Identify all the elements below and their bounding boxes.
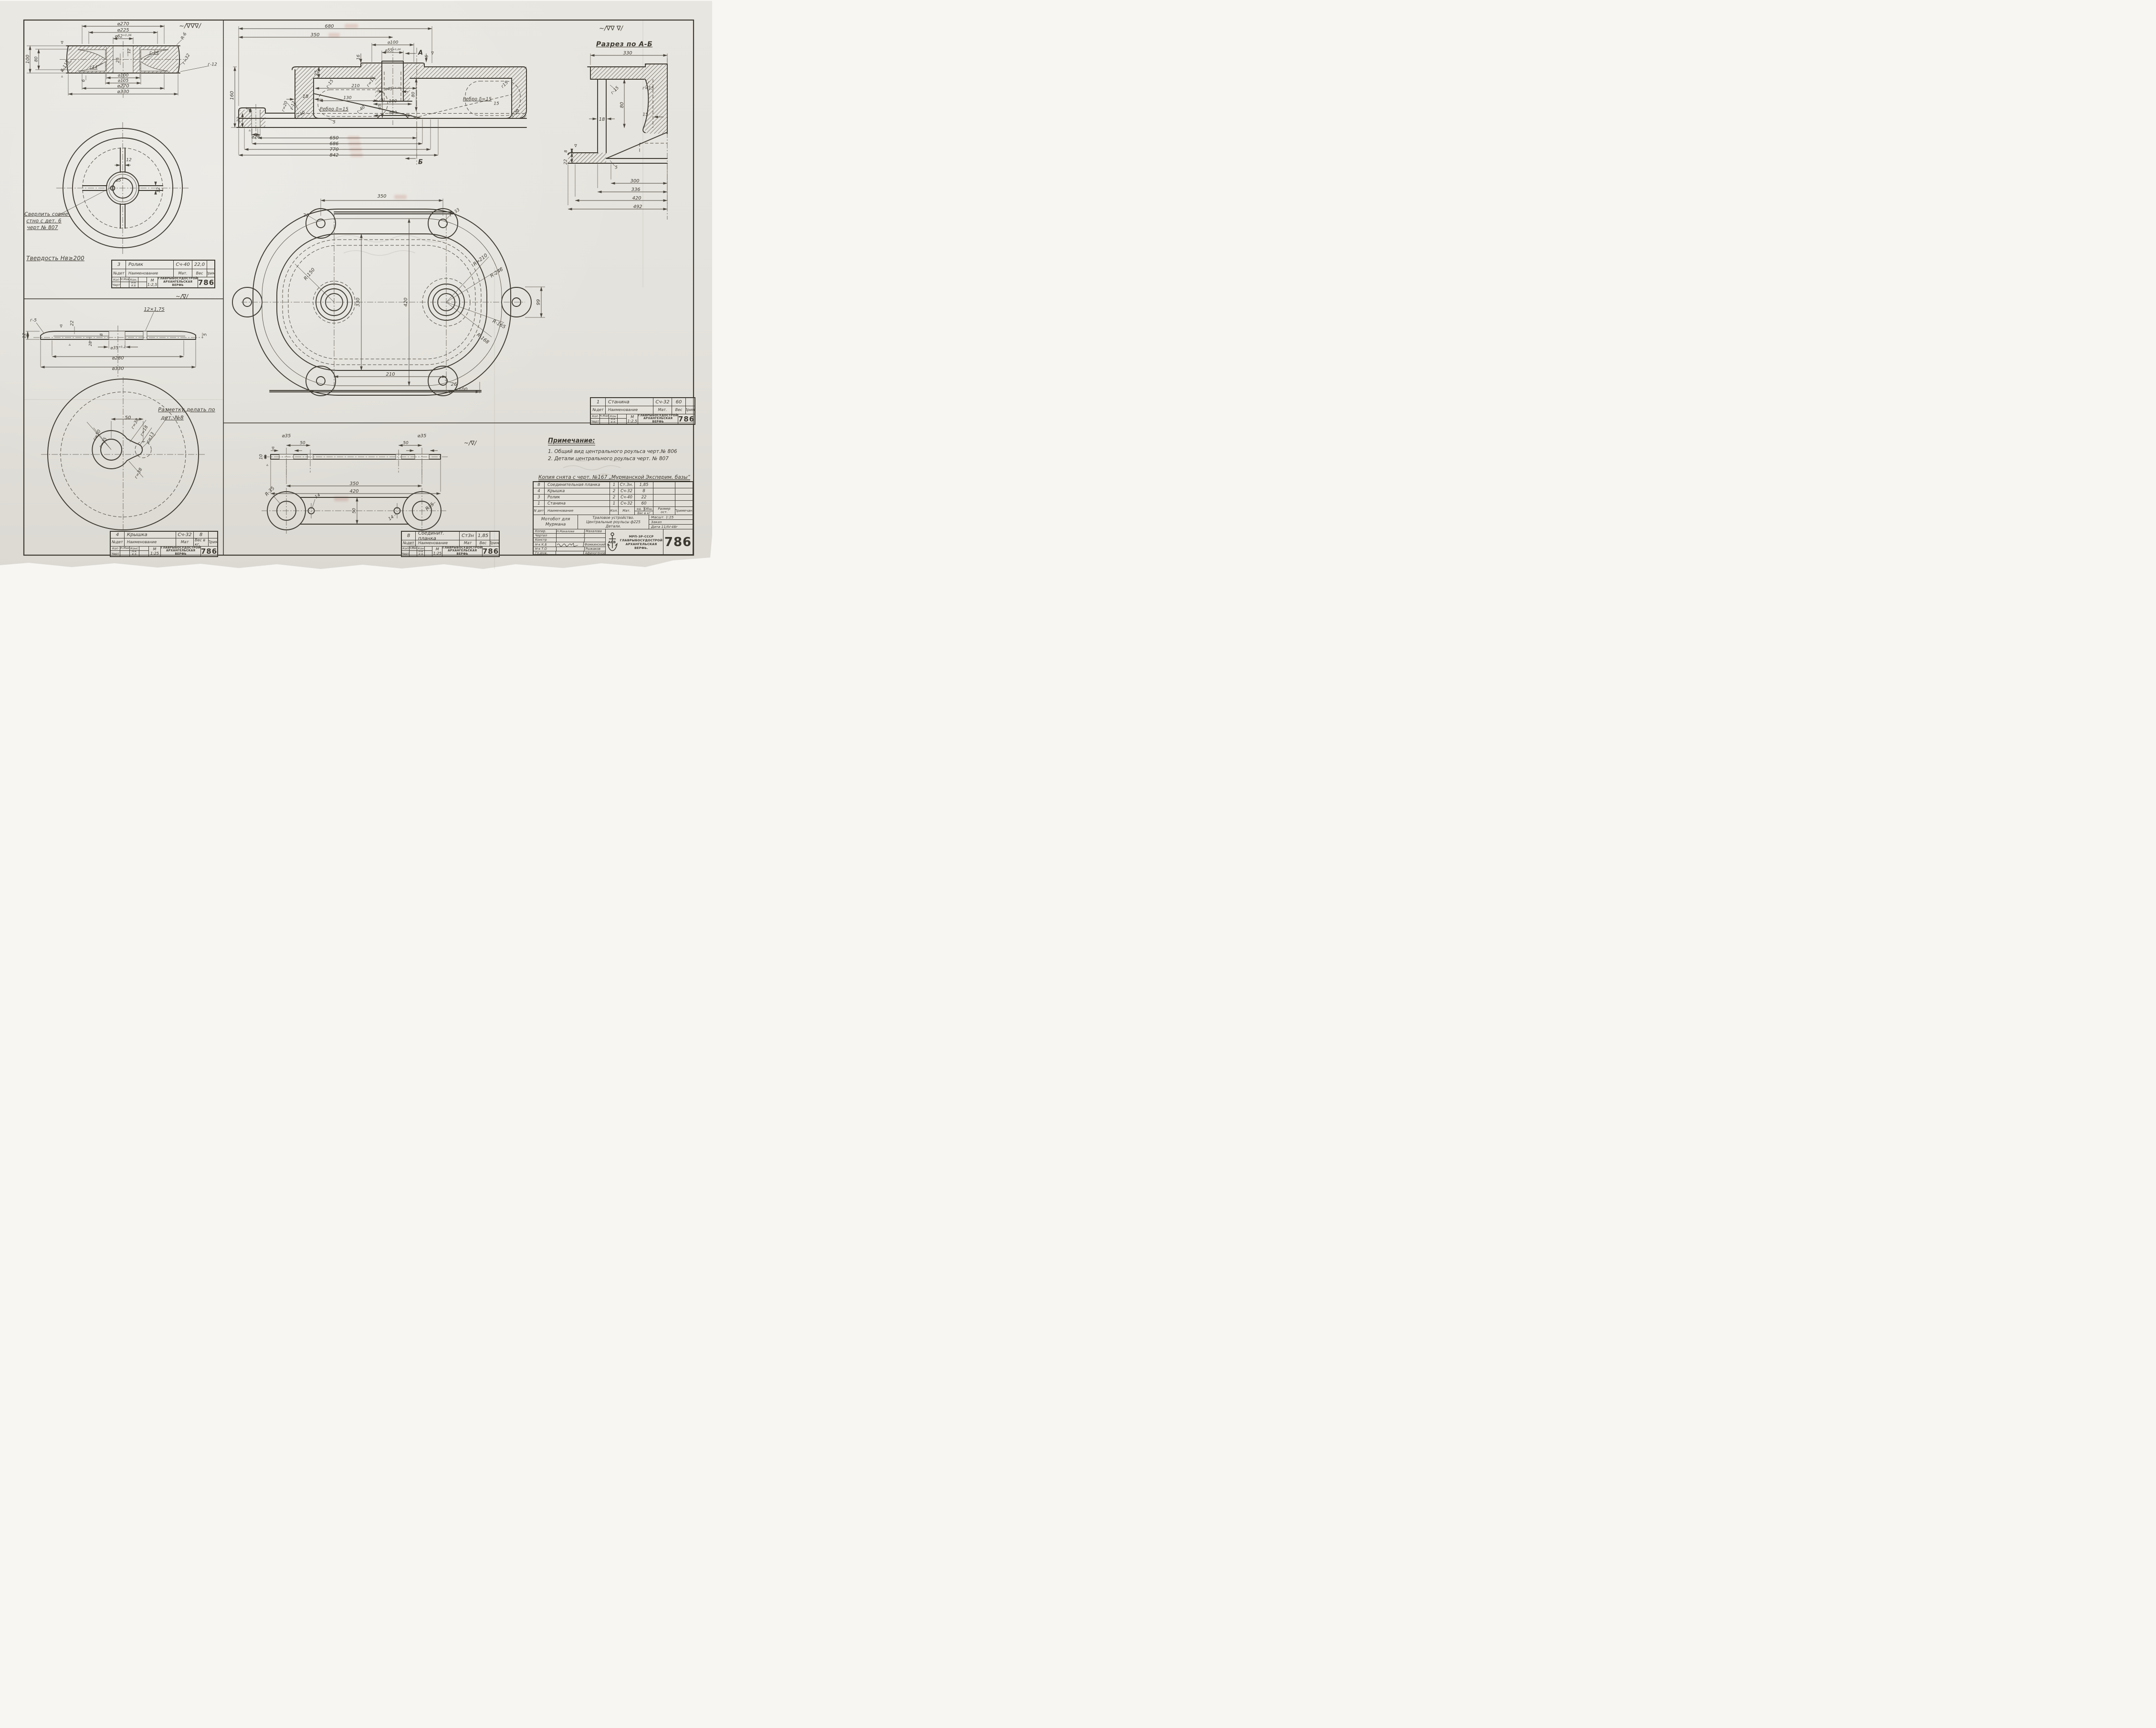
dim-label: 336 bbox=[631, 188, 640, 192]
part-name: Ролик bbox=[545, 495, 610, 500]
organization-name: МРП-ЗР-СССР ГЛАВРЫБОСУДОСТРОЙ АРХАНГЕЛЬС… bbox=[620, 535, 663, 550]
dim-label: г-12 bbox=[208, 63, 217, 67]
dim-label: 300 bbox=[630, 179, 639, 184]
part-size bbox=[653, 495, 675, 500]
dim-label: г=15 bbox=[367, 76, 377, 88]
stamp-stanina: 1 Станина Сч-32 60 №дет Наименование Мат… bbox=[590, 397, 695, 425]
stamp-header-num: №дет bbox=[591, 406, 606, 413]
part-weight: 22 bbox=[635, 495, 653, 500]
stamp-part-name: Крышка bbox=[125, 532, 176, 538]
stamp-remark bbox=[207, 261, 214, 269]
svg-text:АСВ: АСВ bbox=[608, 540, 616, 544]
part-material: Сч-32 bbox=[619, 501, 635, 506]
dim-label: г=38 bbox=[131, 418, 140, 430]
dim-label: ⌀62⁺⁰·⁰⁶ bbox=[115, 35, 131, 39]
stamp-part-number: 4 bbox=[111, 532, 125, 538]
part-qty: 1 bbox=[610, 501, 619, 506]
dim-label: 100 bbox=[458, 388, 467, 392]
notes-title: Примечание: bbox=[548, 437, 595, 445]
dim-label: 12 bbox=[23, 333, 27, 338]
stamp-part-name: Станина bbox=[606, 398, 653, 406]
stamp-header-weight: Вес bbox=[672, 406, 686, 413]
dim-label: 420 bbox=[349, 489, 358, 494]
dim-label: Разметку делать по bbox=[158, 407, 215, 412]
dim-label: R-6 bbox=[180, 32, 188, 41]
dim-label: ▵ bbox=[61, 74, 63, 78]
dim-label: 210 bbox=[351, 84, 359, 89]
stamp-scale: М1:25 bbox=[432, 547, 442, 556]
dim-label: г=35 bbox=[99, 437, 108, 449]
dim-label: 28 bbox=[89, 341, 93, 346]
stamp-header-mat: Мат bbox=[460, 540, 476, 546]
dim-label: г=15 bbox=[642, 87, 654, 91]
dim-label: Ребро δ=15 bbox=[320, 107, 348, 112]
dim-label: г-15 bbox=[610, 86, 620, 95]
dim-label: г=32 bbox=[182, 53, 191, 65]
dim-label: г=20 bbox=[281, 101, 288, 112]
dim-label: А bbox=[418, 50, 423, 56]
drawing-sheet: ~/∇∇∇/⌀270⌀225⌀62⁺⁰·⁰⁶10080R-115г-14г142… bbox=[0, 0, 719, 576]
dim-label: 100 bbox=[389, 100, 397, 104]
dim-label: 5 bbox=[333, 121, 336, 125]
stamp-header-name: Наименование bbox=[126, 269, 174, 277]
dim-label: 6 bbox=[425, 55, 430, 58]
stamp-organization: ГЛАВРЫБОСУДОСТРОЙАРХАНГЕЛЬСКАЯВЕРФЬ bbox=[161, 547, 201, 556]
dim-label: 6 bbox=[82, 79, 86, 82]
dim-label: ⌀5 bbox=[116, 179, 121, 183]
stamp-header-remark: Прим. bbox=[686, 406, 694, 413]
part-number: 4 bbox=[534, 488, 545, 494]
stamp-organization: ГЛАВРЫБОСУДОСТРОЙАРХАНГЕЛЬСКАЯВЕРФЬ bbox=[158, 277, 198, 287]
stamp-drawing-number: 786 bbox=[198, 277, 214, 287]
stamp-scale: М1:25 bbox=[149, 547, 161, 556]
stamp-drawing-number: 786 bbox=[678, 414, 694, 424]
dim-label: ⌀280 bbox=[112, 356, 124, 361]
dim-label: ⌀100 bbox=[388, 41, 399, 45]
part-qty: 2 bbox=[610, 495, 619, 500]
part-note bbox=[675, 488, 693, 494]
dim-label: 18 bbox=[303, 95, 309, 99]
dim-label: дет. №8 bbox=[161, 415, 184, 421]
dim-label: 80 bbox=[620, 102, 625, 108]
stamp-header-num: №дет bbox=[111, 538, 125, 546]
stamp-header-remark: Прим. bbox=[490, 540, 499, 546]
dim-label: ▵ bbox=[69, 343, 71, 347]
stamp-part-number: 8 bbox=[402, 532, 416, 540]
dim-label: 22 bbox=[71, 320, 75, 326]
stamp-rolik: 3 Ролик Сч-40 22,0 №дет Наименование Мат… bbox=[111, 260, 215, 288]
dim-label: 18 bbox=[599, 117, 605, 122]
dim-label: 15 bbox=[642, 113, 648, 117]
dim-label: ⌀35 bbox=[418, 434, 427, 439]
dim-label: ⌀225 bbox=[117, 28, 129, 33]
stamp-material: Сч-40 bbox=[174, 261, 192, 269]
stamp-remark bbox=[490, 532, 499, 540]
dim-label: 26 bbox=[451, 382, 457, 387]
dim-label: 5 bbox=[204, 333, 208, 336]
dim-label: ∇ bbox=[61, 41, 63, 45]
dim-label: 50 bbox=[403, 442, 408, 446]
part-note bbox=[675, 495, 693, 500]
stamp-weight: 22,0 bbox=[192, 261, 207, 269]
dim-label: R-115 bbox=[61, 60, 70, 73]
dim-label: ⌀330 bbox=[117, 90, 129, 95]
dim-label: 5 bbox=[615, 166, 618, 170]
dim-label: ▵ bbox=[249, 128, 251, 132]
stamp-material: Ст3н bbox=[460, 532, 476, 540]
dim-label: 350 bbox=[310, 33, 319, 38]
parts-table-header: N дет Наименование Кол. Мат. ед.Общ. Вес… bbox=[534, 507, 693, 515]
part-note bbox=[675, 501, 693, 506]
stamp-weight: 8 bbox=[194, 532, 209, 538]
notes-block: Примечание: 1. Общий вид центрального ро… bbox=[548, 435, 697, 462]
dim-label: R-35 bbox=[264, 486, 276, 497]
dim-label: ~/∇/ bbox=[176, 294, 188, 299]
dim-label: Сверлить совме- bbox=[24, 212, 70, 217]
dim-label: 130 bbox=[343, 96, 351, 101]
dim-label: 80 bbox=[35, 56, 39, 62]
title-band: Мотобот для Мурмана Траловое устройство.… bbox=[534, 515, 693, 529]
stamp-part-number: 1 bbox=[591, 398, 606, 406]
stamp-scale: М1:2,5 bbox=[627, 414, 638, 424]
dim-label: ~/∇∇∇/ bbox=[179, 23, 201, 30]
part-size bbox=[653, 501, 675, 506]
dim-label: 12 bbox=[157, 187, 161, 192]
stamp-material: Сч-32 bbox=[176, 532, 194, 538]
stamp-material: Сч-32 bbox=[653, 398, 672, 406]
stamp-scale: М1:2,5 bbox=[147, 277, 158, 287]
dim-label: 842 bbox=[329, 153, 338, 158]
stamp-signature-grid: КопН.Мих Кон Черт Н-К К.Б bbox=[402, 547, 432, 556]
dim-label: г14 bbox=[90, 66, 97, 70]
dim-label: 160 bbox=[230, 91, 235, 100]
dim-label: 350 bbox=[349, 482, 358, 486]
stamp-header-weight: Вес bbox=[192, 269, 207, 277]
dim-label: г15 bbox=[501, 81, 509, 89]
stamp-header-weight: Вес bbox=[476, 540, 490, 546]
dim-label: Ребро δ=15 bbox=[463, 97, 492, 102]
stamp-planka: 8 Соединит. планка Ст3н 1,85 №дет Наимен… bbox=[401, 531, 500, 557]
stamp-organization: ГЛАВРЫБОСУДОСТРОЙАРХАНГЕЛЬСКАЯВЕРФЬ bbox=[442, 547, 483, 556]
signature-rows: Копир.Н.МахаловаМахалова Чертил Констр Н… bbox=[534, 529, 606, 555]
shipyard-logo: АСВ МРП-ЗР-СССР ГЛАВРЫБОСУДОСТРОЙ АРХАНГ… bbox=[606, 529, 663, 555]
dim-label: 350 bbox=[377, 194, 386, 199]
dim-label: Разрез по А-Б bbox=[596, 41, 652, 48]
dim-label: г-40 bbox=[357, 105, 366, 115]
dim-label: г=40 bbox=[294, 111, 306, 121]
dim-label: ⌀330 bbox=[112, 367, 124, 371]
stamp-part-name: Соединит. планка bbox=[416, 532, 460, 540]
dim-label: 16 bbox=[357, 54, 361, 60]
stamp-header-mat: Мат. bbox=[174, 269, 192, 277]
dim-label: 26 bbox=[303, 213, 309, 218]
stamp-header-remark: Прим. bbox=[207, 269, 214, 277]
part-material: Сч-40 bbox=[619, 495, 635, 500]
stamp-signature-grid: КопН.Мах Кон Черт Н-К К.Б bbox=[591, 414, 627, 424]
dim-label: 50 bbox=[300, 442, 305, 446]
dim-label: ⌀105 bbox=[118, 79, 129, 84]
dim-label: ⌀26 bbox=[252, 135, 261, 140]
dim-label: 330 bbox=[356, 297, 361, 306]
dim-label: Б bbox=[418, 159, 423, 166]
dim-label: 492 bbox=[633, 205, 642, 210]
drawing-number: 786 bbox=[663, 529, 693, 555]
dim-label: 8 bbox=[564, 150, 568, 152]
anchor-icon: АСВ bbox=[606, 532, 619, 553]
stamp-remark bbox=[686, 398, 694, 406]
part-name: Крышка bbox=[545, 488, 610, 494]
dim-label: 15 bbox=[494, 102, 499, 106]
dim-label: ∇ bbox=[272, 447, 274, 451]
dim-label: ∇ bbox=[431, 52, 433, 55]
part-weight: 1,85 bbox=[635, 482, 653, 488]
dim-label: г=38 bbox=[134, 467, 143, 479]
dim-label: г=18 bbox=[140, 425, 149, 437]
dim-label: 330 bbox=[623, 51, 632, 56]
dim-label: 8 bbox=[246, 107, 250, 109]
dim-label: г-15 bbox=[326, 79, 335, 89]
main-title-block: 8 Соединительная планка 1 Ст.3н. 1,85 4 … bbox=[533, 481, 694, 555]
dim-label: стно с дет. 6 bbox=[26, 219, 61, 224]
dim-label: R-168 bbox=[475, 333, 490, 345]
dim-label: 14 bbox=[388, 515, 395, 522]
stamp-drawing-number: 786 bbox=[201, 547, 217, 556]
dim-label: 99 bbox=[536, 299, 541, 306]
dim-label: ~/∇∇ ∇/ bbox=[599, 26, 623, 32]
dim-label: г=33 bbox=[449, 208, 461, 218]
stamp-header-name: Наименование bbox=[416, 540, 460, 546]
dim-label: 80 bbox=[412, 92, 416, 97]
dim-label: г-20 bbox=[511, 109, 521, 118]
stamp-kryshka: 4 Крышка Сч-32 8 №дет Наименование Мат В… bbox=[110, 531, 218, 557]
part-number: 8 bbox=[534, 482, 545, 488]
dim-label: ⌀35⁺⁰·² bbox=[110, 347, 126, 351]
part-number: 3 bbox=[534, 495, 545, 500]
part-qty: 2 bbox=[610, 488, 619, 494]
dim-label: 210 bbox=[386, 372, 395, 377]
dim-label: ⌀45⁺⁰·⁰⁵ bbox=[385, 87, 400, 92]
dim-label: 65 bbox=[379, 104, 383, 109]
stamp-header-name: Наименование bbox=[125, 538, 176, 546]
stamp-signature-grid: КопН.Мах Кон. Черт Н-К К.Б bbox=[112, 277, 147, 287]
stamp-part-number: 3 bbox=[112, 261, 126, 269]
scale-order-date: Масшт. 1:25 Заказ Дата 11/IV-48г bbox=[649, 515, 693, 529]
dim-label: R-165 bbox=[492, 319, 506, 330]
dim-label: г=13 bbox=[146, 432, 155, 443]
note-item: 2. Детали центрального роульса черт. № 8… bbox=[548, 456, 697, 462]
dim-label: 50 bbox=[125, 416, 131, 421]
dim-label: ⌀270 bbox=[117, 22, 129, 27]
dim-label: R-246 bbox=[490, 267, 504, 279]
dim-label: ∇ bbox=[60, 325, 62, 328]
stamp-header-remark: Прим bbox=[209, 538, 217, 546]
stamp-weight: 60 bbox=[672, 398, 686, 406]
part-weight: 8 bbox=[635, 488, 653, 494]
dim-label: 25 bbox=[116, 57, 121, 63]
dim-label: ⌀90 bbox=[389, 111, 397, 116]
stamp-remark bbox=[209, 532, 217, 538]
dim-label: г-12 bbox=[290, 101, 296, 110]
dim-label: ⌀35 bbox=[282, 434, 291, 439]
dim-label: R-150 bbox=[304, 267, 316, 281]
part-size bbox=[653, 488, 675, 494]
dim-label: 686 bbox=[329, 142, 338, 147]
dim-label: 12×1,75 bbox=[144, 307, 164, 312]
dim-label: 420 bbox=[404, 297, 409, 306]
stamp-signature-grid: КопН.Мах Конс Черт Н-К К.Б bbox=[111, 547, 149, 556]
drawing-title: Траловое устройство. Центральные роульсы… bbox=[578, 515, 649, 529]
dim-label: 22 bbox=[564, 159, 568, 164]
stamp-header-mat: Мат. bbox=[653, 406, 672, 413]
copy-note: Копия снята с черт. №167 „Мурманской Экс… bbox=[538, 474, 690, 481]
dim-label: ▵ bbox=[266, 463, 268, 467]
stamp-organization: ГЛАВРЫБОСУДОСТРОЙАРХАНГЕЛЬСКАЯВЕРФЬ bbox=[638, 414, 678, 424]
stamp-header-name: Наименование bbox=[606, 406, 653, 413]
stamp-weight: 1,85 bbox=[476, 532, 490, 540]
dim-label: 12 bbox=[126, 158, 131, 163]
note-item: 1. Общий вид центрального роульса черт.№… bbox=[548, 449, 697, 454]
stamp-drawing-number: 786 bbox=[483, 547, 499, 556]
dim-label: ∇ bbox=[574, 144, 577, 148]
dim-label: R=210 bbox=[473, 253, 488, 267]
part-number: 1 bbox=[534, 501, 545, 506]
dim-label: 770 bbox=[329, 148, 338, 152]
dim-label: ⌀55⁺⁰·⁰⁶ bbox=[385, 49, 400, 53]
dim-label: 14 bbox=[315, 493, 322, 500]
stamp-header-mat: Мат bbox=[176, 538, 194, 546]
part-note bbox=[675, 482, 693, 488]
part-qty: 1 bbox=[610, 482, 619, 488]
project-name: Мотобот для Мурмана bbox=[534, 515, 578, 529]
dim-label: R35 bbox=[425, 502, 435, 512]
part-name: Станина bbox=[545, 501, 610, 506]
part-material: Сч-32 bbox=[619, 488, 635, 494]
dim-label: 22 bbox=[237, 116, 242, 122]
dim-label: ⌀100 bbox=[118, 74, 129, 78]
dim-label: 420 bbox=[632, 196, 641, 201]
stamp-header-weight: Вес в кг. bbox=[194, 538, 209, 546]
dim-label: 680 bbox=[325, 24, 334, 29]
dim-label: Твердость Нв≥200 bbox=[26, 255, 84, 261]
dim-label: 50 bbox=[353, 508, 357, 513]
dim-label: 8 bbox=[100, 333, 104, 336]
part-material: Ст.3н. bbox=[619, 482, 635, 488]
part-name: Соединительная планка bbox=[545, 482, 610, 488]
part-weight: 60 bbox=[635, 501, 653, 506]
dim-label: 10 bbox=[260, 454, 264, 459]
stamp-part-name: Ролик bbox=[126, 261, 174, 269]
dim-label: 12 bbox=[127, 49, 131, 53]
dim-label: 650 bbox=[329, 136, 338, 141]
signature-scrawl bbox=[556, 542, 584, 547]
stamp-header-num: №дет bbox=[112, 269, 126, 277]
dim-label: г-14 bbox=[149, 51, 158, 55]
dim-label: ⌀270 bbox=[117, 84, 129, 89]
dim-label: 25 bbox=[315, 70, 319, 75]
part-size bbox=[653, 482, 675, 488]
dim-label: 100 bbox=[26, 54, 31, 63]
dim-label: ~/∇/ bbox=[464, 440, 476, 446]
stamp-header-num: №дет bbox=[402, 540, 416, 546]
dim-label: г=50 bbox=[93, 429, 102, 441]
dim-label: г-5 bbox=[30, 319, 37, 323]
parts-table: 8 Соединительная планка 1 Ст.3н. 1,85 4 … bbox=[534, 482, 693, 507]
dim-label: черт № 807 bbox=[27, 225, 58, 231]
